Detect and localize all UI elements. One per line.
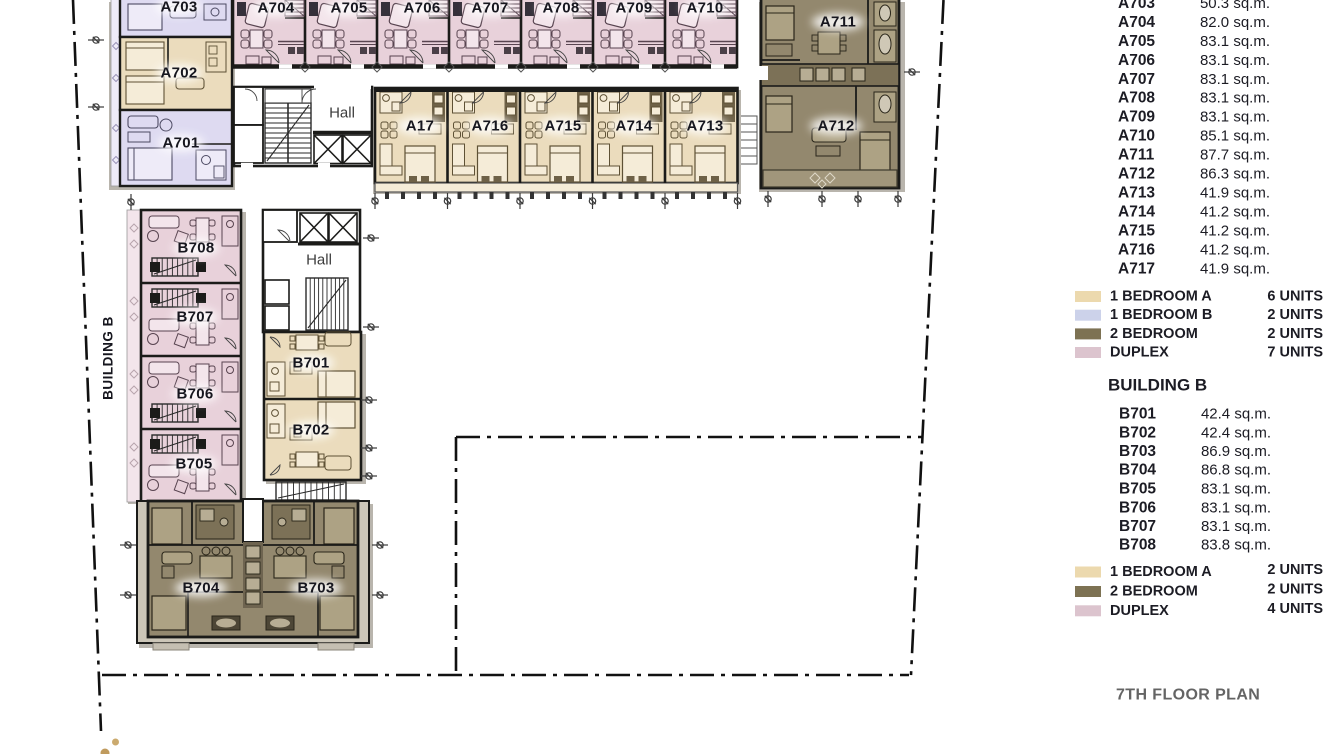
svg-text:B703: B703 bbox=[297, 580, 334, 597]
svg-text:B701: B701 bbox=[292, 355, 329, 372]
svg-text:A708: A708 bbox=[1118, 90, 1155, 107]
svg-text:A710: A710 bbox=[1118, 128, 1155, 145]
svg-text:6 UNITS: 6 UNITS bbox=[1267, 289, 1323, 305]
svg-text:A714: A714 bbox=[1118, 203, 1155, 220]
svg-text:4 UNITS: 4 UNITS bbox=[1267, 601, 1323, 617]
svg-text:2 UNITS: 2 UNITS bbox=[1267, 562, 1323, 578]
svg-text:A702: A702 bbox=[160, 65, 197, 82]
svg-text:B707: B707 bbox=[176, 309, 213, 326]
svg-text:B705: B705 bbox=[175, 456, 212, 473]
svg-text:83.1 sq.m.: 83.1 sq.m. bbox=[1200, 33, 1270, 50]
svg-text:B702: B702 bbox=[1119, 424, 1156, 441]
svg-text:BUILDING B: BUILDING B bbox=[1108, 376, 1207, 395]
svg-text:B701: B701 bbox=[1119, 406, 1156, 423]
svg-text:B703: B703 bbox=[1119, 443, 1156, 460]
svg-text:41.9 sq.m.: 41.9 sq.m. bbox=[1200, 185, 1270, 202]
svg-text:83.8 sq.m.: 83.8 sq.m. bbox=[1201, 537, 1271, 554]
svg-text:A712: A712 bbox=[1118, 166, 1155, 183]
svg-text:B706: B706 bbox=[1119, 499, 1156, 516]
svg-text:B702: B702 bbox=[292, 422, 329, 439]
svg-text:41.9 sq.m.: 41.9 sq.m. bbox=[1200, 260, 1270, 277]
svg-text:A703: A703 bbox=[160, 0, 197, 16]
svg-text:DUPLEX: DUPLEX bbox=[1110, 603, 1169, 619]
svg-text:83.1 sq.m.: 83.1 sq.m. bbox=[1200, 90, 1270, 107]
svg-text:82.0 sq.m.: 82.0 sq.m. bbox=[1200, 14, 1270, 31]
svg-text:1 BEDROOM A: 1 BEDROOM A bbox=[1110, 289, 1212, 305]
svg-text:42.4 sq.m.: 42.4 sq.m. bbox=[1201, 406, 1271, 423]
svg-text:A715: A715 bbox=[1118, 222, 1155, 239]
svg-text:A716: A716 bbox=[1118, 241, 1155, 258]
svg-text:B708: B708 bbox=[177, 240, 214, 257]
svg-text:DUPLEX: DUPLEX bbox=[1110, 345, 1169, 361]
svg-text:A713: A713 bbox=[1118, 185, 1155, 202]
svg-text:41.2 sq.m.: 41.2 sq.m. bbox=[1200, 241, 1270, 258]
svg-text:A717: A717 bbox=[1118, 260, 1155, 277]
svg-text:1 BEDROOM B: 1 BEDROOM B bbox=[1110, 307, 1212, 323]
svg-text:83.1 sq.m.: 83.1 sq.m. bbox=[1201, 499, 1271, 516]
svg-text:86.9 sq.m.: 86.9 sq.m. bbox=[1201, 443, 1271, 460]
svg-text:A714: A714 bbox=[615, 118, 652, 135]
svg-text:A709: A709 bbox=[1118, 109, 1155, 126]
svg-text:83.1 sq.m.: 83.1 sq.m. bbox=[1200, 71, 1270, 88]
svg-text:B704: B704 bbox=[182, 580, 219, 597]
svg-text:B707: B707 bbox=[1119, 518, 1156, 535]
svg-text:A712: A712 bbox=[817, 118, 854, 135]
svg-text:41.2 sq.m.: 41.2 sq.m. bbox=[1200, 203, 1270, 220]
svg-text:A704: A704 bbox=[1118, 14, 1155, 31]
svg-text:42.4 sq.m.: 42.4 sq.m. bbox=[1201, 424, 1271, 441]
svg-text:A703: A703 bbox=[1118, 0, 1155, 12]
svg-text:Hall: Hall bbox=[329, 105, 355, 122]
svg-text:2 UNITS: 2 UNITS bbox=[1267, 326, 1323, 342]
svg-text:50.3 sq.m.: 50.3 sq.m. bbox=[1200, 0, 1270, 12]
svg-text:A710: A710 bbox=[686, 0, 723, 17]
svg-text:A707: A707 bbox=[471, 0, 508, 17]
svg-text:83.1 sq.m.: 83.1 sq.m. bbox=[1201, 518, 1271, 535]
svg-text:A713: A713 bbox=[686, 118, 723, 135]
svg-text:7TH FLOOR PLAN: 7TH FLOOR PLAN bbox=[1116, 687, 1260, 704]
svg-text:A706: A706 bbox=[1118, 52, 1155, 69]
svg-text:7 UNITS: 7 UNITS bbox=[1267, 345, 1323, 361]
svg-text:2 UNITS: 2 UNITS bbox=[1267, 582, 1323, 598]
svg-text:A701: A701 bbox=[162, 135, 199, 152]
svg-text:41.2 sq.m.: 41.2 sq.m. bbox=[1200, 222, 1270, 239]
svg-text:A707: A707 bbox=[1118, 71, 1155, 88]
svg-text:87.7 sq.m.: 87.7 sq.m. bbox=[1200, 147, 1270, 164]
svg-text:A709: A709 bbox=[615, 0, 652, 17]
svg-text:B705: B705 bbox=[1119, 481, 1156, 498]
svg-text:B708: B708 bbox=[1119, 537, 1156, 554]
svg-text:86.3 sq.m.: 86.3 sq.m. bbox=[1200, 166, 1270, 183]
svg-text:B706: B706 bbox=[176, 386, 213, 403]
svg-text:A705: A705 bbox=[330, 0, 367, 17]
svg-text:83.1 sq.m.: 83.1 sq.m. bbox=[1200, 52, 1270, 69]
svg-text:A711: A711 bbox=[1118, 147, 1155, 164]
svg-text:Hall: Hall bbox=[306, 252, 332, 269]
svg-text:83.1 sq.m.: 83.1 sq.m. bbox=[1200, 109, 1270, 126]
svg-text:2 BEDROOM: 2 BEDROOM bbox=[1110, 584, 1198, 600]
svg-text:83.1 sq.m.: 83.1 sq.m. bbox=[1201, 481, 1271, 498]
svg-text:A715: A715 bbox=[544, 118, 581, 135]
svg-text:A711: A711 bbox=[820, 14, 856, 31]
svg-text:A705: A705 bbox=[1118, 33, 1155, 50]
svg-text:85.1 sq.m.: 85.1 sq.m. bbox=[1200, 128, 1270, 145]
svg-text:A708: A708 bbox=[542, 0, 579, 17]
svg-text:BUILDING B: BUILDING B bbox=[101, 316, 116, 400]
svg-text:2 UNITS: 2 UNITS bbox=[1267, 307, 1323, 323]
svg-text:B704: B704 bbox=[1119, 462, 1156, 479]
svg-text:A17: A17 bbox=[406, 118, 434, 135]
svg-text:A704: A704 bbox=[257, 0, 294, 17]
svg-text:2 BEDROOM: 2 BEDROOM bbox=[1110, 326, 1198, 342]
svg-text:1 BEDROOM A: 1 BEDROOM A bbox=[1110, 564, 1212, 580]
svg-text:A706: A706 bbox=[403, 0, 440, 17]
svg-text:A716: A716 bbox=[471, 118, 508, 135]
svg-text:86.8 sq.m.: 86.8 sq.m. bbox=[1201, 462, 1271, 479]
